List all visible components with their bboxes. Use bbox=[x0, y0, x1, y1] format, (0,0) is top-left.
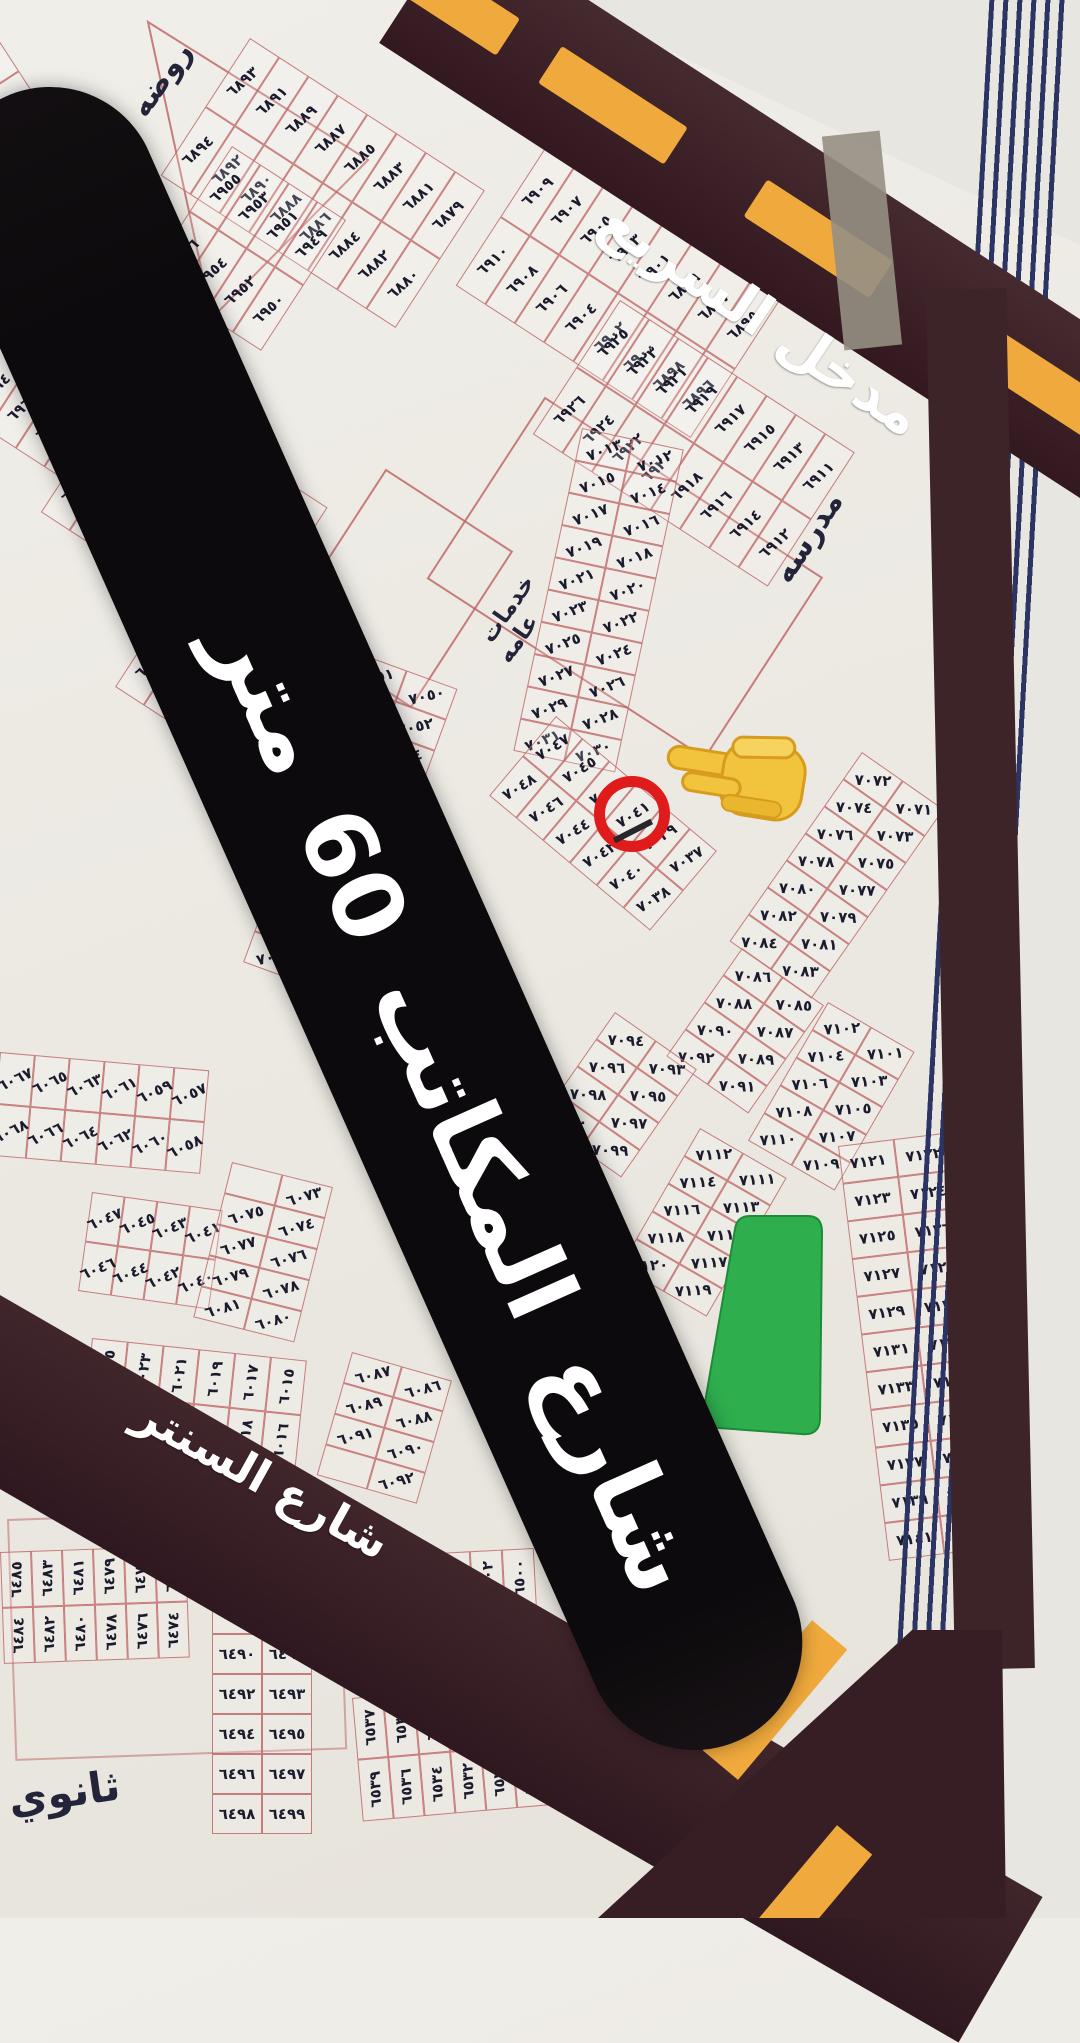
plot-cell: ٦٠١٩ bbox=[194, 1349, 236, 1407]
plot-number: ٧١٠٩ bbox=[802, 1154, 840, 1174]
plot-number: ٧٠٨١ bbox=[801, 934, 838, 953]
plot-number: ٧١١٩ bbox=[674, 1280, 712, 1300]
plot-number: ٦٠٦٠ bbox=[130, 1128, 171, 1160]
plot-number: ٧٠٩٧ bbox=[611, 1113, 648, 1132]
plot-cell: ٦٤٩٦ bbox=[212, 1754, 262, 1794]
plot-cell: ٦٠٦٥ bbox=[30, 1055, 69, 1110]
plot-cell: ٦٠٥٨ bbox=[165, 1119, 204, 1174]
plot-number: ٧١٢٩ bbox=[867, 1301, 906, 1323]
plot-number: ٦٤٩٦ bbox=[219, 1765, 256, 1783]
plot-number: ٧١١٨ bbox=[647, 1228, 685, 1248]
plot-number: ٦٠٢١ bbox=[167, 1355, 191, 1394]
plot-row: ٦٤٩٥٦٤٩٤ bbox=[212, 1714, 312, 1754]
plot-cell: ٦٤٩٠ bbox=[212, 1634, 262, 1674]
plot-number: ٧٠٢٢ bbox=[600, 607, 641, 637]
plot-number: ٧٠٧٣ bbox=[876, 826, 913, 845]
plot-cell: ٦٤٩٣ bbox=[262, 1674, 312, 1714]
plot-number: ٦٠٧٦ bbox=[268, 1245, 308, 1272]
plot-number: ٦٤٨٤ bbox=[9, 1617, 28, 1654]
plot-number: ٦٠٦١ bbox=[99, 1073, 140, 1105]
plot-number: ٧١١٢ bbox=[695, 1144, 733, 1164]
plot-number: ٧٠٧٢ bbox=[854, 770, 891, 789]
plot-cell: ٦٠٤٣ bbox=[150, 1201, 190, 1255]
plot-number: ٧٠٢٥ bbox=[543, 628, 584, 658]
plot-number: ٧١٠١ bbox=[866, 1043, 904, 1063]
plot-number: ٦٤٩٥ bbox=[269, 1725, 306, 1743]
plot-number: ٧٠٢٣ bbox=[549, 596, 590, 626]
plot-number: ٦٥٣٦ bbox=[397, 1768, 416, 1805]
plot-number: ٦٠٥٩ bbox=[134, 1076, 175, 1108]
plot-number: ٧٠٩٩ bbox=[592, 1140, 629, 1159]
plot-number: ٧٠١٦ bbox=[621, 510, 662, 540]
plot-number: ٧١٠٤ bbox=[807, 1046, 845, 1066]
plot-number: ٧٠١٥ bbox=[577, 467, 618, 497]
plot-block-a6073: ٦٠٧٣٦٠٧٤٦٠٧٥٦٠٧٦٦٠٧٧٦٠٧٨٦٠٧٩٦٠٨٠٦٠٨١ bbox=[193, 1162, 333, 1342]
plot-number: ٧٠٢٧ bbox=[536, 661, 577, 691]
plot-number: ٦٠٦٥ bbox=[30, 1067, 71, 1099]
plot-number: ٦٥٣٩ bbox=[366, 1771, 385, 1808]
plot-block-a7012: ٧٠١٢٧٠١٣٧٠١٤٧٠١٥٧٠١٦٧٠١٧٧٠١٨٧٠١٩٧٠٢٠٧٠٢١… bbox=[513, 428, 683, 772]
plot-cell: ٦٠٤٦ bbox=[78, 1242, 118, 1296]
plot-cell: ٦٠٥٩ bbox=[135, 1064, 174, 1119]
plot-number: ٦٤٩٧ bbox=[269, 1765, 306, 1783]
plot-number: ٧١٠٣ bbox=[850, 1071, 888, 1091]
plot-number: ٧٠٩١ bbox=[719, 1076, 756, 1095]
plot-number: ٧٠٩٤ bbox=[607, 1030, 644, 1049]
plot-number: ٦٤٨٠ bbox=[71, 1615, 90, 1652]
plot-number: ٦٤٩٠ bbox=[219, 1645, 256, 1663]
plot-map-photo: { "map": { "banner": { "street_label": "… bbox=[0, 0, 1080, 1918]
plot-number: ٦٠١٥ bbox=[274, 1366, 298, 1405]
plot-cell: ٦٤٨٥ bbox=[0, 1551, 33, 1608]
plot-number: ٧٠٨٦ bbox=[734, 966, 771, 985]
plot-number: ٦٠٥٧ bbox=[169, 1079, 210, 1111]
plot-number: ٧١٢٣ bbox=[853, 1188, 892, 1210]
plot-number: ٦٠١٩ bbox=[202, 1359, 226, 1398]
plot-number: ٦٠٦٦ bbox=[25, 1118, 66, 1150]
plot-number: ٧١١١ bbox=[738, 1169, 776, 1189]
plot-number: ٧٠٩٨ bbox=[570, 1084, 607, 1103]
plot-number: ٦٠٦٣ bbox=[65, 1070, 106, 1102]
plot-cell: ٦٤٩٧ bbox=[262, 1754, 312, 1794]
plot-cell: ٦٤٩٥ bbox=[262, 1714, 312, 1754]
plot-number: ٦٠٦٧ bbox=[0, 1064, 36, 1096]
plot-cell: ٦٥٣٤ bbox=[419, 1752, 455, 1816]
plot-number: ٦٠٧٥ bbox=[226, 1201, 266, 1228]
plot-row: ٦٤٩٩٦٤٩٨ bbox=[212, 1794, 312, 1834]
plot-cell: ٦٠١٧ bbox=[229, 1353, 271, 1411]
plot-block-a6086: ٦٠٨٦٦٠٨٧٦٠٨٨٦٠٨٩٦٠٩٠٦٠٩١٦٠٩٢ bbox=[317, 1352, 452, 1504]
plot-cell: ٦٠٦١ bbox=[100, 1061, 139, 1116]
plot-number: ٦٠٧٤ bbox=[276, 1214, 316, 1241]
plot-cell: ٦٠٤٢ bbox=[143, 1251, 183, 1305]
plot-cell: ٦٥٣٦ bbox=[388, 1754, 424, 1818]
plot-number: ٧٠٧٦ bbox=[817, 824, 854, 843]
plot-number: ٧٠٥٠ bbox=[407, 682, 447, 708]
plot-cell: ٦٤٧٤ bbox=[157, 1601, 190, 1658]
plot-cell: ٦٠٤٤ bbox=[111, 1246, 151, 1300]
plot-cell: ٦٤٨١ bbox=[62, 1549, 95, 1606]
plot-number: ٧٠٢٨ bbox=[580, 704, 621, 734]
plot-number: ٦٠٨٨ bbox=[394, 1406, 434, 1432]
plot-number: ٦٤٩٨ bbox=[219, 1805, 256, 1823]
plot-number: ٧٠١٢ bbox=[635, 445, 676, 475]
plot-number: ٦٤٧٨ bbox=[102, 1614, 121, 1651]
plot-cell: ٦٤٩٢ bbox=[212, 1674, 262, 1714]
plot-number: ٧٠٧١ bbox=[895, 799, 932, 818]
plot-number: ٦٠٨٧ bbox=[353, 1361, 393, 1387]
plot-number: ٦٠١٧ bbox=[238, 1363, 262, 1402]
plot-number: ٧٠٨٤ bbox=[741, 932, 778, 951]
plot-number: ٧٠٢١ bbox=[556, 564, 597, 594]
plot-number: ٦٠٦٨ bbox=[0, 1115, 31, 1147]
plot-number: ٧١٠٢ bbox=[823, 1018, 861, 1038]
plot-number: ٦٤٩٣ bbox=[269, 1685, 306, 1703]
plot-number: ٦٠٩٠ bbox=[385, 1437, 425, 1463]
plot-cell: ٦٠٦٤ bbox=[61, 1110, 100, 1165]
plot-number: ٦٤٨٢ bbox=[40, 1616, 59, 1653]
plot-cell: ٦٠٦٢ bbox=[96, 1113, 135, 1168]
plot-number: ٧١١٤ bbox=[679, 1172, 717, 1192]
plot-number: ٦٠٨١ bbox=[202, 1294, 242, 1321]
plot-number: ٦٥٣٤ bbox=[428, 1765, 447, 1802]
plot-number: ٧٠٢٦ bbox=[587, 671, 628, 701]
plot-number: ٦٤٩٢ bbox=[219, 1685, 256, 1703]
plot-number: ٧١٢١ bbox=[849, 1150, 888, 1172]
plot-number: ٧٠٢٩ bbox=[529, 693, 570, 723]
plot-cell: ٦٠٦٦ bbox=[26, 1107, 65, 1162]
plot-cell: ٦٤٩٩ bbox=[262, 1794, 312, 1834]
plot-number: ٦٤٨١ bbox=[69, 1559, 88, 1596]
plot-number: ٦٤٧٦ bbox=[133, 1613, 152, 1650]
plot-number: ٧٠٨٩ bbox=[738, 1049, 775, 1068]
plot-number: ٧١٢٧ bbox=[863, 1263, 902, 1285]
plot-number: ٦٠٧٣ bbox=[284, 1183, 324, 1210]
plot-number: ٧٠٧٥ bbox=[858, 853, 895, 872]
plot-number: ٦٠٨٦ bbox=[403, 1376, 443, 1402]
plot-cell: ٦٠٦٧ bbox=[0, 1052, 35, 1107]
plot-number: ٧١١٣ bbox=[722, 1197, 760, 1217]
road-dash bbox=[538, 46, 688, 165]
plot-number: ٧٠١٧ bbox=[570, 499, 611, 529]
plot-number: ٦٤٩٩ bbox=[269, 1805, 306, 1823]
plot-number: ٧١٣٣ bbox=[877, 1377, 916, 1399]
plot-number: ٧٠٧٤ bbox=[835, 797, 872, 816]
plot-cell: ٦٠٤٧ bbox=[85, 1192, 125, 1246]
plot-number: ٦٠٧٨ bbox=[261, 1276, 301, 1303]
plot-number: ٦٠٦٢ bbox=[95, 1124, 136, 1156]
plot-number: ٧٠١٣ bbox=[584, 435, 625, 465]
plot-number: ٧٠٨٧ bbox=[756, 1022, 793, 1041]
plot-number: ٦٠٧٩ bbox=[210, 1263, 250, 1290]
plot-number: ٦٠٧٧ bbox=[218, 1232, 258, 1259]
plot-cell: ٦٠٤٥ bbox=[118, 1197, 158, 1251]
plot-number: ٦٥٣٢ bbox=[459, 1763, 478, 1800]
plot-row: ٦٤٩٧٦٤٩٦ bbox=[212, 1754, 312, 1794]
plot-number: ٧٠٩٠ bbox=[697, 1020, 734, 1039]
plot-cell: ٦٤٨٤ bbox=[2, 1607, 35, 1664]
plot-cell: ٦٤٨٢ bbox=[33, 1606, 66, 1663]
plot-number: ٧١١٥ bbox=[706, 1225, 744, 1245]
plot-cell: ٦٤٧٨ bbox=[95, 1604, 128, 1661]
plot-number: ٧٠٧٧ bbox=[839, 880, 876, 899]
plot-block-a6057: ٦٠٥٧٦٠٥٩٦٠٦١٦٠٦٣٦٠٦٥٦٠٦٧٦٠٥٨٦٠٦٠٦٠٦٢٦٠٦٤… bbox=[0, 1052, 209, 1174]
plot-number: ٧٠٢٤ bbox=[593, 639, 634, 669]
plot-row: ٦٤٧٤٦٤٧٦٦٤٧٨٦٤٨٠٦٤٨٢٦٤٨٤ bbox=[2, 1601, 190, 1663]
plot-number: ٦٤٨٣ bbox=[38, 1560, 57, 1597]
plot-cell: ٦٤٩٤ bbox=[212, 1714, 262, 1754]
plot-number: ٧٠٢٠ bbox=[607, 575, 648, 605]
plot-number: ٧١١٦ bbox=[663, 1200, 701, 1220]
plot-number: ٧٠٧٩ bbox=[820, 907, 857, 926]
plot-row: ٦٤٩٣٦٤٩٢ bbox=[212, 1674, 312, 1714]
plot-number: ٧٠١٤ bbox=[628, 478, 669, 508]
plot-number: ٧١٣١ bbox=[872, 1339, 911, 1361]
plot-number: ٦٠٨٠ bbox=[253, 1307, 293, 1334]
plot-number: ٧١٠٥ bbox=[834, 1099, 872, 1119]
plot-number: ٧١١٠ bbox=[759, 1129, 797, 1149]
plot-number: ٧١٠٨ bbox=[775, 1102, 813, 1122]
plot-cell: ٦٤٩٨ bbox=[212, 1794, 262, 1834]
plot-number: ٧١١٧ bbox=[690, 1253, 728, 1273]
plot-number: ٧٠١٨ bbox=[614, 542, 655, 572]
plot-cell: ٦٠٦٣ bbox=[65, 1058, 104, 1113]
plot-number: ٧٠٨٢ bbox=[760, 905, 797, 924]
plot-cell: ٦٠١٥ bbox=[265, 1357, 307, 1415]
plot-cell: ٦٠٦٠ bbox=[130, 1116, 169, 1171]
plot-number: ٦٤٩٤ bbox=[219, 1725, 256, 1743]
plot-number: ٦٠٩١ bbox=[335, 1423, 375, 1449]
plot-number: ٧٠٩٣ bbox=[648, 1059, 685, 1078]
plot-cell: ٦٥٣٩ bbox=[357, 1757, 393, 1821]
plot-number: ٦٠٥٨ bbox=[165, 1131, 206, 1163]
plot-cell: ٦٤٨٠ bbox=[64, 1605, 97, 1662]
plot-number: ٧١٠٦ bbox=[791, 1074, 829, 1094]
pointing-finger-icon bbox=[656, 711, 821, 842]
plot-number: ٧٠٨٣ bbox=[782, 961, 819, 980]
plot-number: ٦٤٧٤ bbox=[164, 1612, 183, 1649]
plot-number: ٧٠١٩ bbox=[563, 531, 604, 561]
plot-number: ٦٤٨٥ bbox=[7, 1561, 26, 1598]
plot-number: ٧٠٨٨ bbox=[715, 993, 752, 1012]
plot-number: ٧٠٨٥ bbox=[775, 995, 812, 1014]
plot-number: ٦٠٦٤ bbox=[60, 1121, 101, 1153]
plot-number: ٧٠٩٦ bbox=[588, 1057, 625, 1076]
plot-number: ٧١٢٥ bbox=[858, 1226, 897, 1248]
plot-number: ٦٠٨٩ bbox=[344, 1392, 384, 1418]
plot-cell: ٦٤٧٦ bbox=[126, 1603, 159, 1660]
plot-cell: ٦٤٨٣ bbox=[31, 1550, 64, 1607]
plot-number: ٧٠٧٨ bbox=[798, 851, 835, 870]
plot-number: ٦٥٣٧ bbox=[361, 1709, 380, 1746]
plot-cell: ٦٠٦٨ bbox=[0, 1104, 30, 1159]
plot-number: ٧٠٨٠ bbox=[779, 878, 816, 897]
plot-number: ٦٤٧٩ bbox=[100, 1558, 119, 1595]
plot-number: ٧٠٩٥ bbox=[629, 1086, 666, 1105]
plot-number: ٦٠٩٢ bbox=[376, 1468, 416, 1494]
plot-cell: ٦٠٥٧ bbox=[170, 1067, 209, 1122]
